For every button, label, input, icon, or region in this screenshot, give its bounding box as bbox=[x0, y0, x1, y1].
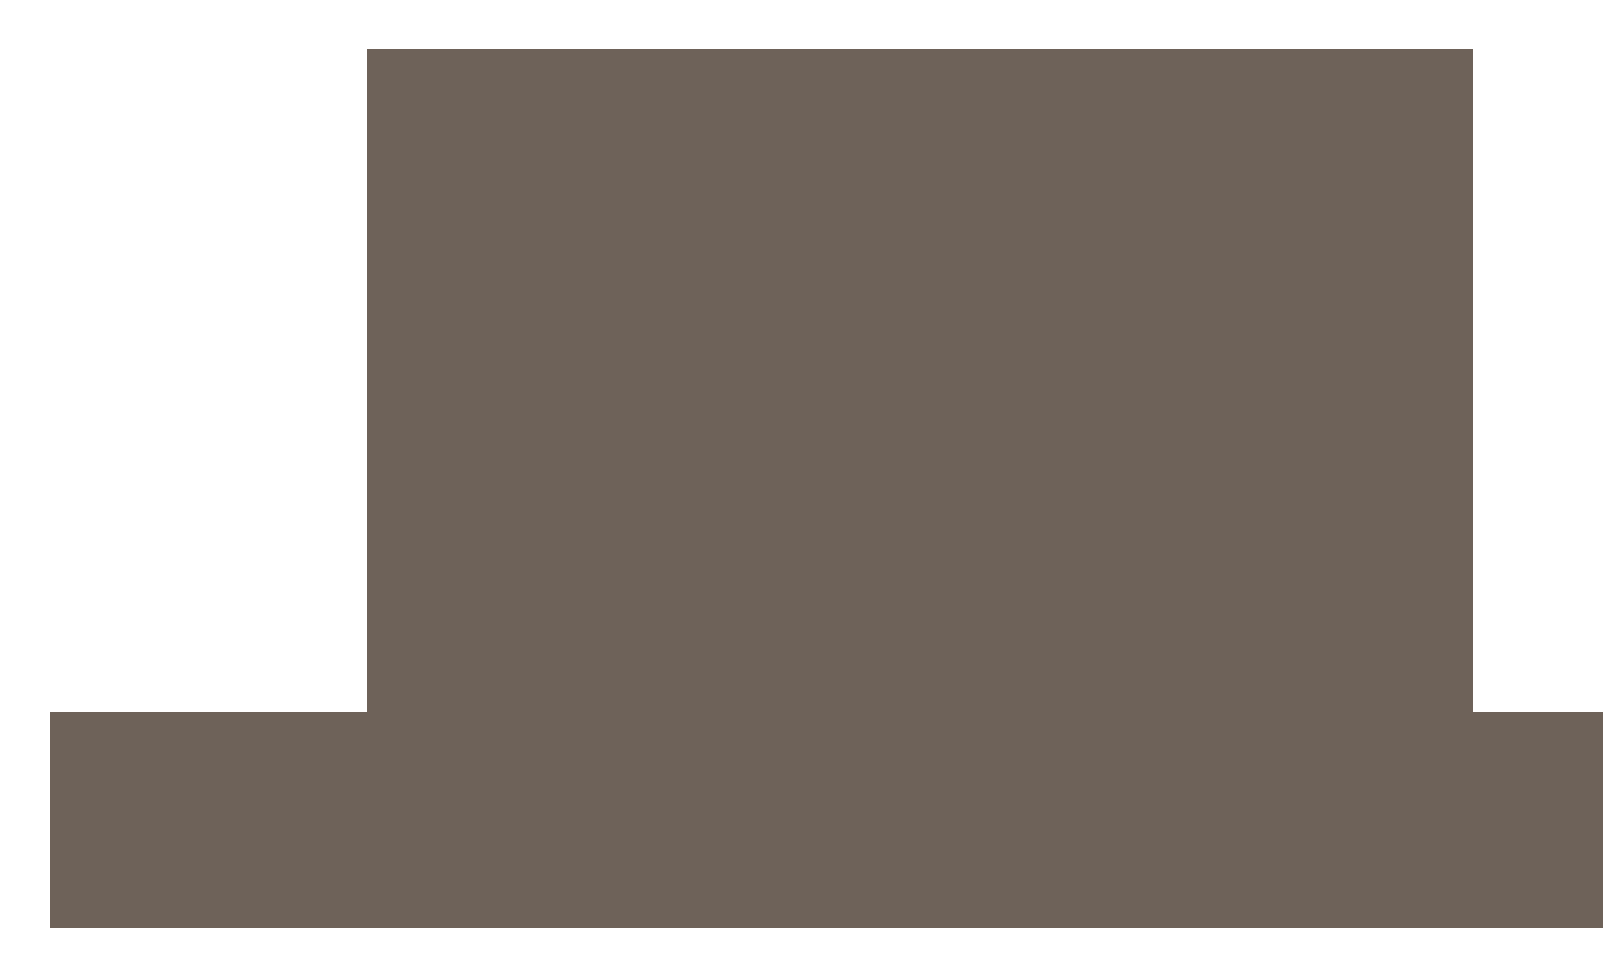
blank-canvas bbox=[0, 0, 1614, 961]
silhouette-base-block bbox=[50, 712, 1603, 928]
silhouette-screen-block bbox=[367, 49, 1473, 712]
